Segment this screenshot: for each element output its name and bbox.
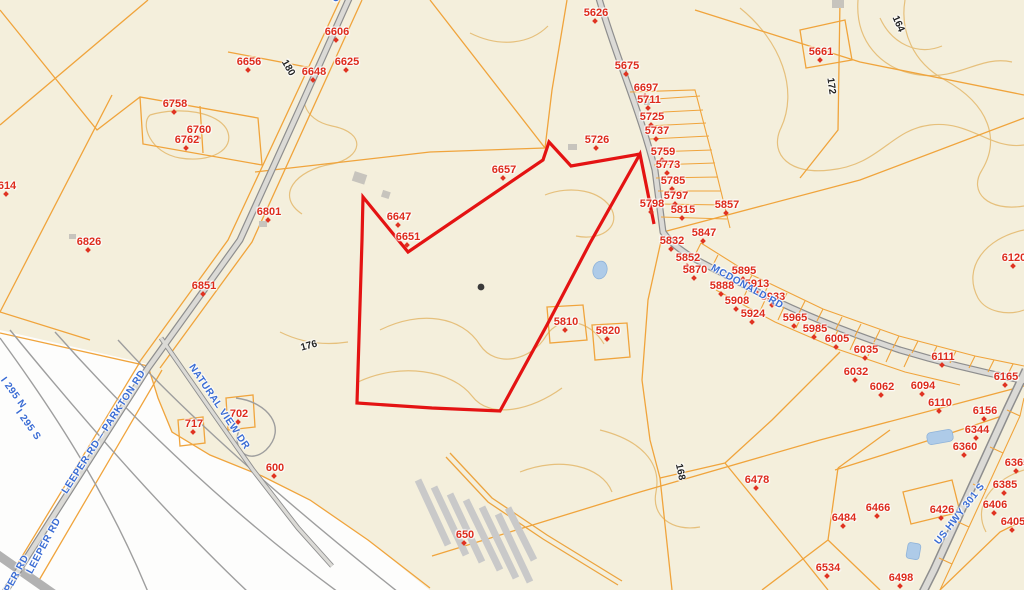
parcel-label-6385: 6385 <box>993 479 1017 491</box>
contour-label-180: 180 <box>279 58 297 78</box>
parcel-label-5820: 5820 <box>596 325 620 337</box>
parcel-label-6651: 6651 <box>396 231 420 243</box>
parcel-label-5870: 5870 <box>683 264 707 276</box>
parcel-point-6385 <box>1001 490 1007 496</box>
parcel-point-717 <box>190 429 196 435</box>
parcel-label-5924: 5924 <box>741 308 765 320</box>
parcel-label-5626: 5626 <box>584 7 608 19</box>
parcel-point-5661 <box>817 57 823 63</box>
parcel-point-5737 <box>653 136 659 142</box>
parcel-point-6035 <box>862 355 868 361</box>
parcel-label-6697: 6697 <box>634 82 658 94</box>
parcel-label-5737: 5737 <box>645 125 669 137</box>
parcel-label-600: 600 <box>266 462 284 474</box>
parcel-point-6648 <box>310 77 316 83</box>
parcel-point-6625 <box>343 67 349 73</box>
parcel-label-6111: 6111 <box>931 351 954 363</box>
parcel-point-5832 <box>668 246 674 252</box>
parcel-label-6365: 6365 <box>1005 457 1024 469</box>
parcel-point-614 <box>3 191 9 197</box>
parcel-label-6360: 6360 <box>953 441 977 453</box>
parcel-point-6606 <box>333 37 339 43</box>
road-label-i-295-n: I 295 N <box>0 375 28 410</box>
parcel-point-6758 <box>171 109 177 115</box>
map-canvas[interactable]: 5626660656616656662566485675669767585711… <box>0 0 1024 590</box>
parcel-point-5870 <box>691 275 697 281</box>
parcel-point-5626 <box>592 18 598 24</box>
parcel-point-6534 <box>824 573 830 579</box>
parcel-label-6426: 6426 <box>930 504 954 516</box>
parcel-point-6466 <box>874 513 880 519</box>
parcel-label-5857: 5857 <box>715 199 739 211</box>
parcel-label-5810: 5810 <box>554 316 578 328</box>
parcel-point-6478 <box>753 485 759 491</box>
parcel-label-6758: 6758 <box>163 98 187 110</box>
parcel-label-6405: 6405 <box>1001 516 1024 528</box>
parcel-point-5888 <box>718 291 724 297</box>
parcel-point-6498 <box>897 583 903 589</box>
parcel-point-6826 <box>85 247 91 253</box>
parcel-label-6094: 6094 <box>911 380 935 392</box>
parcel-label-6498: 6498 <box>889 572 913 584</box>
road-label-parkton-rd: PARKTON RD <box>302 0 342 4</box>
parcel-point-6156 <box>981 416 987 422</box>
parcel-point-6005 <box>833 344 839 350</box>
parcel-label-6032: 6032 <box>844 366 868 378</box>
parcel-label-6156: 6156 <box>973 405 997 417</box>
parcel-point-5908 <box>733 306 739 312</box>
parcel-label-6657: 6657 <box>492 164 516 176</box>
parcel-label-614: 614 <box>0 180 16 192</box>
parcel-label-5759: 5759 <box>651 146 675 158</box>
parcel-point-6651 <box>404 242 410 248</box>
parcel-point-6762 <box>183 145 189 151</box>
parcel-label-5725: 5725 <box>640 111 664 123</box>
map-label-layer: 5626660656616656662566485675669767585711… <box>0 0 1024 590</box>
parcel-label-6466: 6466 <box>866 502 890 514</box>
parcel-point-6365 <box>1013 468 1019 474</box>
parcel-point-6360 <box>961 452 967 458</box>
parcel-point-6647 <box>395 222 401 228</box>
parcel-point-5810 <box>562 327 568 333</box>
parcel-point-650 <box>461 540 467 546</box>
parcel-point-5798 <box>648 209 654 215</box>
parcel-label-6165: 6165 <box>994 371 1018 383</box>
parcel-point-5965 <box>791 323 797 329</box>
parcel-label-5985: 5985 <box>803 323 827 335</box>
parcel-point-6484 <box>840 523 846 529</box>
parcel-label-5798: 5798 <box>640 198 664 210</box>
parcel-label-6606: 6606 <box>325 26 349 38</box>
parcel-point-6110 <box>936 408 942 414</box>
parcel-point-5711 <box>645 105 651 111</box>
parcel-label-6344: 6344 <box>965 424 989 436</box>
parcel-label-5675: 5675 <box>615 60 639 72</box>
contour-label-172: 172 <box>824 77 837 95</box>
parcel-point-5924 <box>749 319 755 325</box>
contour-label-176: 176 <box>300 339 319 354</box>
road-label-leeper-rd-parkton-rd: LEEPER RD – PARKTON RD <box>60 368 148 496</box>
parcel-label-6110: 6110 <box>928 397 952 409</box>
parcel-point-5847 <box>700 238 706 244</box>
parcel-label-5908: 5908 <box>725 295 749 307</box>
parcel-point-6111 <box>939 362 945 368</box>
parcel-label-6648: 6648 <box>302 66 326 78</box>
parcel-point-5820 <box>604 336 610 342</box>
parcel-point-6405 <box>1009 527 1015 533</box>
parcel-point-5985 <box>811 334 817 340</box>
parcel-point-6094 <box>919 391 925 397</box>
parcel-point-5675 <box>623 71 629 77</box>
parcel-point-5857 <box>723 210 729 216</box>
parcel-label-5661: 5661 <box>809 46 833 58</box>
parcel-point-6120 <box>1010 263 1016 269</box>
parcel-point-5815 <box>679 215 685 221</box>
parcel-label-6478: 6478 <box>745 474 769 486</box>
parcel-label-5785: 5785 <box>661 175 685 187</box>
parcel-point-6801 <box>265 217 271 223</box>
parcel-point-5726 <box>593 145 599 151</box>
parcel-label-6851: 6851 <box>192 280 216 292</box>
parcel-label-5797: 5797 <box>664 190 688 202</box>
parcel-label-6625: 6625 <box>335 56 359 68</box>
road-label-natural-view-dr: NATURAL VIEW DR <box>186 362 251 451</box>
parcel-label-6656: 6656 <box>237 56 261 68</box>
parcel-point-6032 <box>852 377 858 383</box>
parcel-label-650: 650 <box>456 529 474 541</box>
parcel-point-6657 <box>500 175 506 181</box>
parcel-label-5832: 5832 <box>660 235 684 247</box>
parcel-point-6851 <box>200 291 206 297</box>
contour-label-168: 168 <box>673 463 687 482</box>
road-label-leeper-rd: LEEPER RD <box>25 516 64 576</box>
parcel-point-6344 <box>973 435 979 441</box>
contour-label-164: 164 <box>890 14 907 34</box>
parcel-label-6534: 6534 <box>816 562 840 574</box>
road-label-i-295-s: I 295 S <box>13 408 43 443</box>
parcel-label-6484: 6484 <box>832 512 856 524</box>
parcel-label-5773: 5773 <box>656 159 680 171</box>
parcel-label-6035: 6035 <box>854 344 878 356</box>
parcel-label-6647: 6647 <box>387 211 411 223</box>
parcel-point-600 <box>271 473 277 479</box>
parcel-label-5847: 5847 <box>692 227 716 239</box>
parcel-label-6062: 6062 <box>870 381 894 393</box>
parcel-label-6762: 6762 <box>175 134 199 146</box>
parcel-label-717: 717 <box>185 418 203 430</box>
parcel-point-6062 <box>878 392 884 398</box>
parcel-point-6426 <box>938 515 944 521</box>
parcel-label-6801: 6801 <box>257 206 281 218</box>
parcel-label-5726: 5726 <box>585 134 609 146</box>
parcel-label-6826: 6826 <box>77 236 101 248</box>
parcel-label-5711: 5711 <box>637 94 661 106</box>
parcel-label-5815: 5815 <box>671 204 695 216</box>
parcel-point-6406 <box>991 510 997 516</box>
parcel-label-6406: 6406 <box>983 499 1007 511</box>
parcel-label-5852: 5852 <box>676 252 700 264</box>
parcel-point-6165 <box>1002 382 1008 388</box>
parcel-point-6656 <box>245 67 251 73</box>
parcel-label-6005: 6005 <box>825 333 849 345</box>
